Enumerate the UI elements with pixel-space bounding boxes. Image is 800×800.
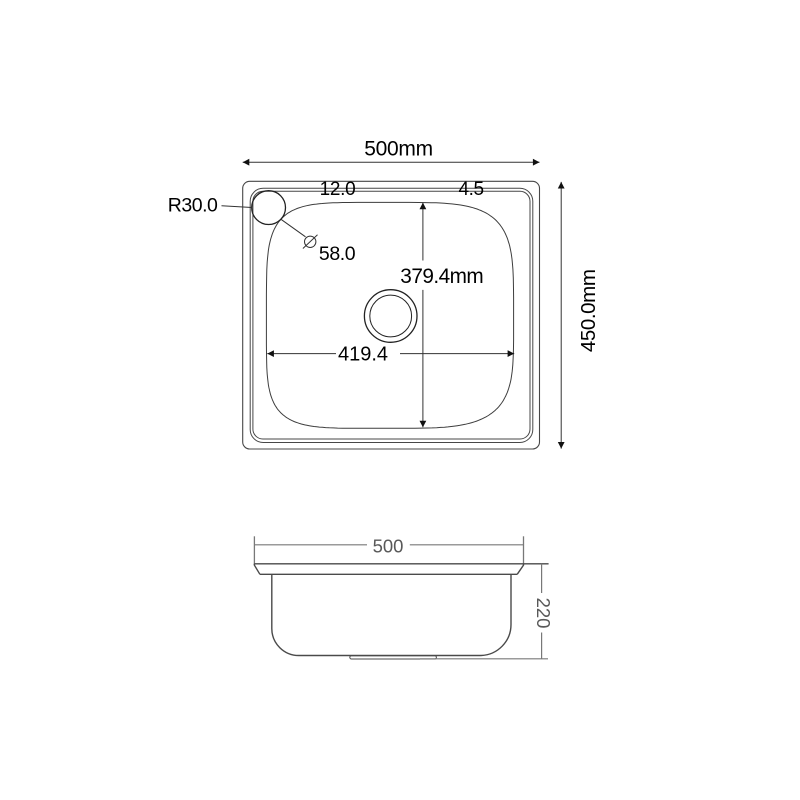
svg-text:419.4: 419.4 [338,344,388,366]
svg-text:500mm: 500mm [364,137,433,160]
svg-text:R30.0: R30.0 [168,195,218,217]
svg-text:4.5: 4.5 [459,179,484,200]
svg-text:379.4mm: 379.4mm [400,265,483,288]
svg-text:500: 500 [373,536,404,557]
svg-text:58.0: 58.0 [319,243,356,265]
svg-text:12.0: 12.0 [320,179,356,200]
svg-text:220: 220 [533,598,554,629]
svg-text:450.0mm: 450.0mm [577,269,600,352]
